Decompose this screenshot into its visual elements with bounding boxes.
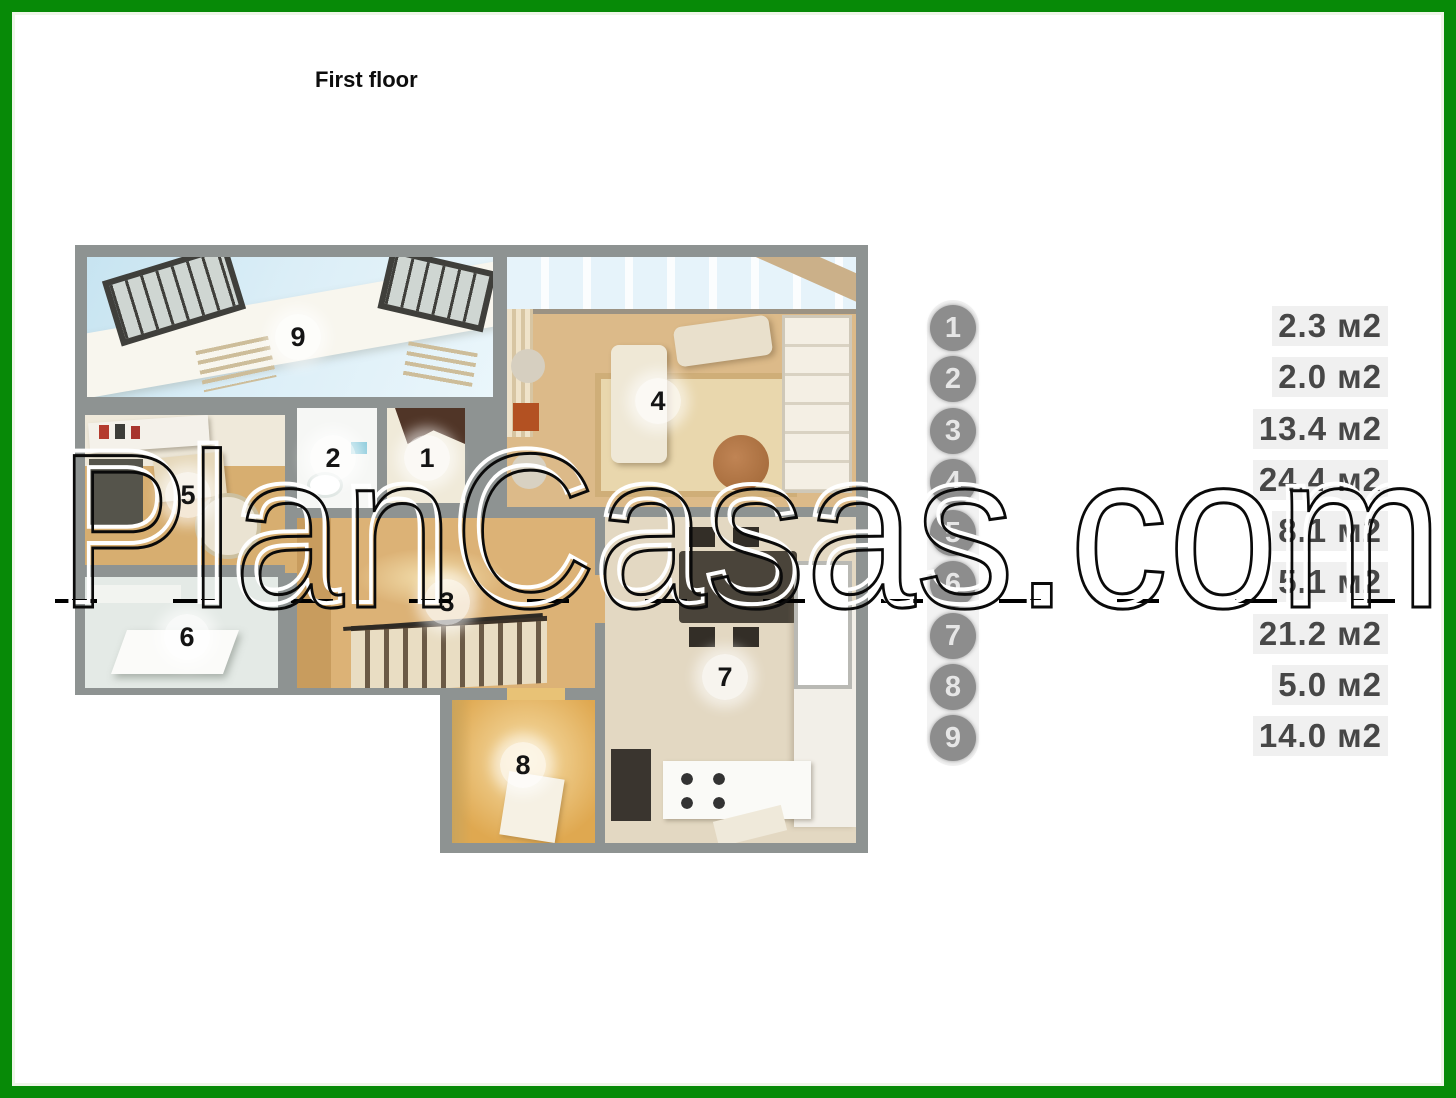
door-opening	[507, 688, 565, 700]
legend-area-value-5: 8.1 м2	[1272, 511, 1388, 551]
side-table	[513, 403, 539, 431]
legend-badge-8: 8	[930, 664, 976, 710]
legend-area-value-8: 5.0 м2	[1272, 665, 1388, 705]
dining-table	[679, 551, 797, 623]
dining-chair	[689, 627, 715, 647]
window	[794, 561, 852, 689]
room-1-marker: 1	[404, 435, 450, 481]
legend-area-value-7: 21.2 м2	[1253, 614, 1388, 654]
room-2-marker: 2	[310, 435, 356, 481]
legend-badge-5: 5	[930, 510, 976, 556]
legend-badge-2: 2	[930, 356, 976, 402]
room-4-marker: 4	[635, 378, 681, 424]
sofa	[673, 315, 774, 368]
page-title: First floor	[315, 67, 418, 93]
fridge	[611, 749, 651, 821]
legend-area-value-1: 2.3 м2	[1272, 306, 1388, 346]
roof-vent	[402, 341, 478, 391]
shelf-item	[115, 424, 125, 439]
wall-shadow	[452, 700, 472, 843]
side-table	[511, 349, 545, 383]
legend-area-value-2: 2.0 м2	[1272, 357, 1388, 397]
legend-badge-3: 3	[930, 408, 976, 454]
wardrobe	[782, 315, 852, 493]
legend-badge-7: 7	[930, 613, 976, 659]
dining-chair	[733, 527, 759, 547]
legend-badge-1: 1	[930, 305, 976, 351]
room-8-marker: 8	[500, 742, 546, 788]
shelf	[91, 585, 181, 603]
cabinet	[89, 459, 143, 525]
shelf-item	[99, 425, 109, 439]
legend-area-value-4: 24.4 м2	[1253, 460, 1388, 500]
shelf-item	[131, 426, 140, 439]
room-7-marker: 7	[702, 654, 748, 700]
side-table	[511, 453, 547, 489]
cooktop	[663, 761, 811, 819]
legend-badge-6: 6	[930, 561, 976, 607]
room-6-marker: 6	[164, 614, 210, 660]
floor-plan: 1 2 3 4 5 6 7 8 9	[75, 245, 875, 853]
room-4-living-room	[507, 257, 856, 507]
door-opening	[285, 533, 297, 573]
page: First floor	[0, 0, 1456, 1098]
room-5-marker: 5	[165, 472, 211, 518]
dining-chair	[689, 527, 715, 547]
room-3-marker: 3	[424, 579, 470, 625]
legend-badge-9: 9	[930, 715, 976, 761]
dining-chair	[733, 627, 759, 647]
door-opening	[595, 575, 605, 623]
armchair	[713, 435, 769, 491]
legend-area-value-3: 13.4 м2	[1253, 409, 1388, 449]
legend-badge-4: 4	[930, 459, 976, 505]
legend-area-value-6: 5.1 м2	[1272, 562, 1388, 602]
room-9-marker: 9	[275, 314, 321, 360]
legend-area-value-9: 14.0 м2	[1253, 716, 1388, 756]
